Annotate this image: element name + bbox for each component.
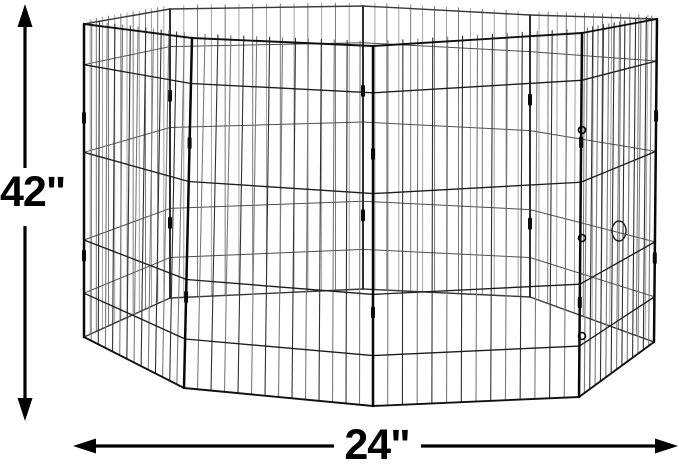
arrow-down-icon bbox=[18, 398, 33, 421]
width-dimension-label: 24" bbox=[338, 423, 416, 467]
pen-back-panels bbox=[84, 3, 657, 342]
arrow-up-icon bbox=[18, 4, 33, 27]
arrow-right-icon bbox=[655, 439, 678, 454]
exercise-pen-illustration bbox=[0, 0, 679, 467]
product-dimension-image: 42" 24" bbox=[0, 0, 679, 467]
arrow-left-icon bbox=[73, 439, 96, 454]
height-dimension-label: 42" bbox=[0, 170, 62, 214]
pen-front-panels bbox=[82, 16, 658, 406]
